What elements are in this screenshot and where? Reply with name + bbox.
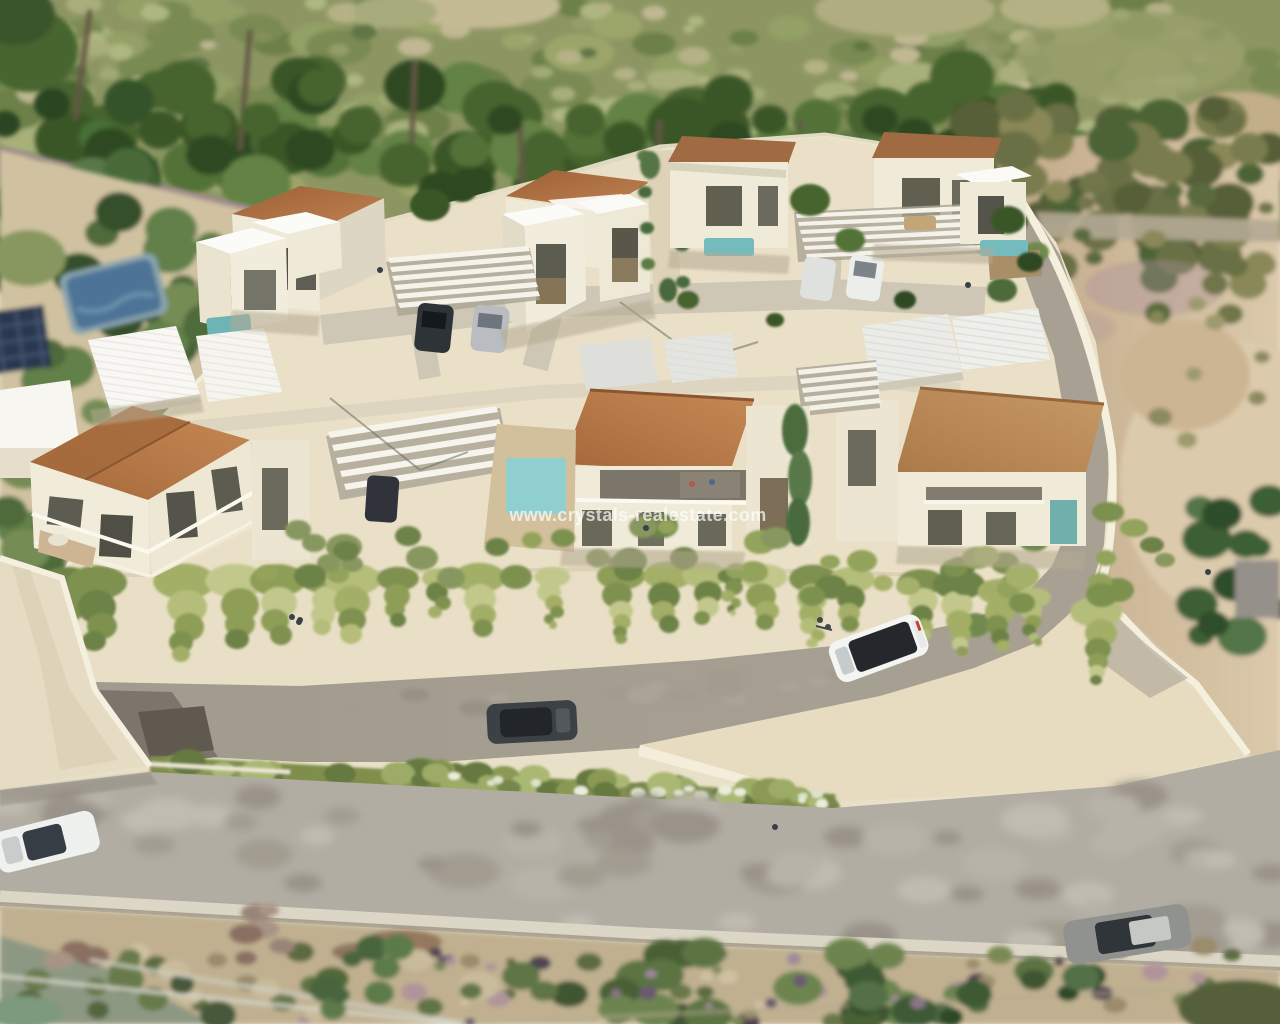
svg-text:www.crystals-realestate.com: www.crystals-realestate.com (508, 505, 766, 525)
